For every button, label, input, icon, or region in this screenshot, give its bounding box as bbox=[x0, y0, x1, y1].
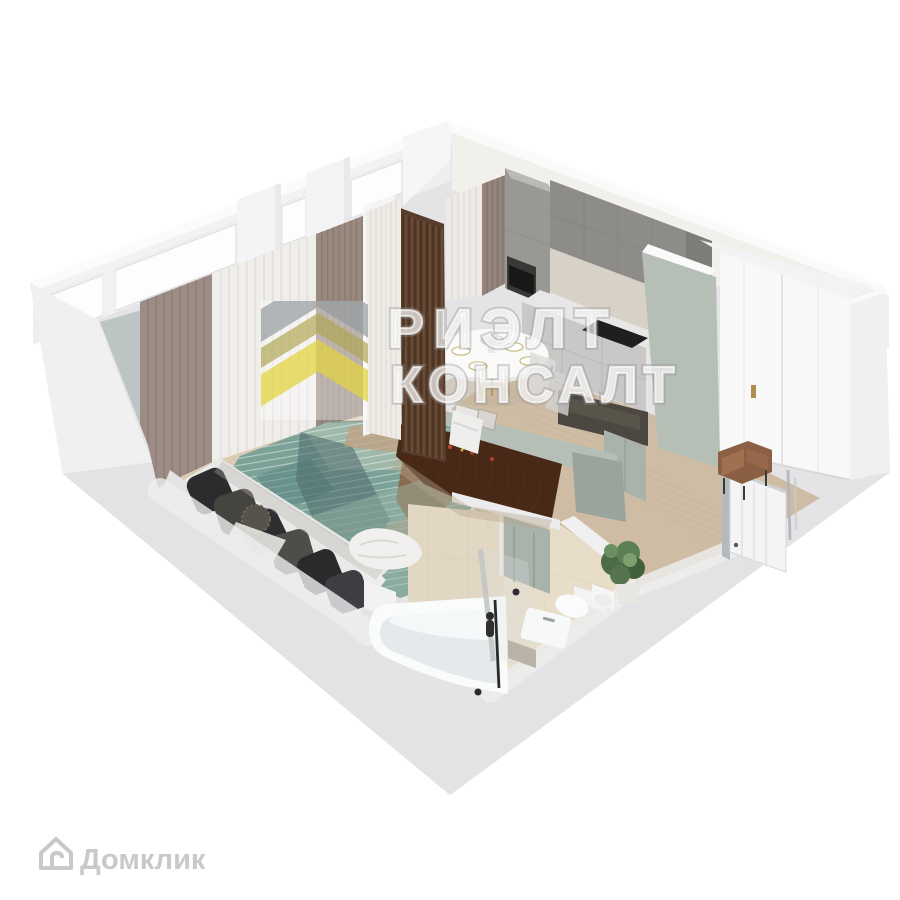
svg-text:Домклик: Домклик bbox=[80, 844, 206, 876]
svg-text:КОНСАЛТ: КОНСАЛТ bbox=[391, 356, 681, 413]
svg-text:РИЭЛТ: РИЭЛТ bbox=[388, 299, 618, 359]
